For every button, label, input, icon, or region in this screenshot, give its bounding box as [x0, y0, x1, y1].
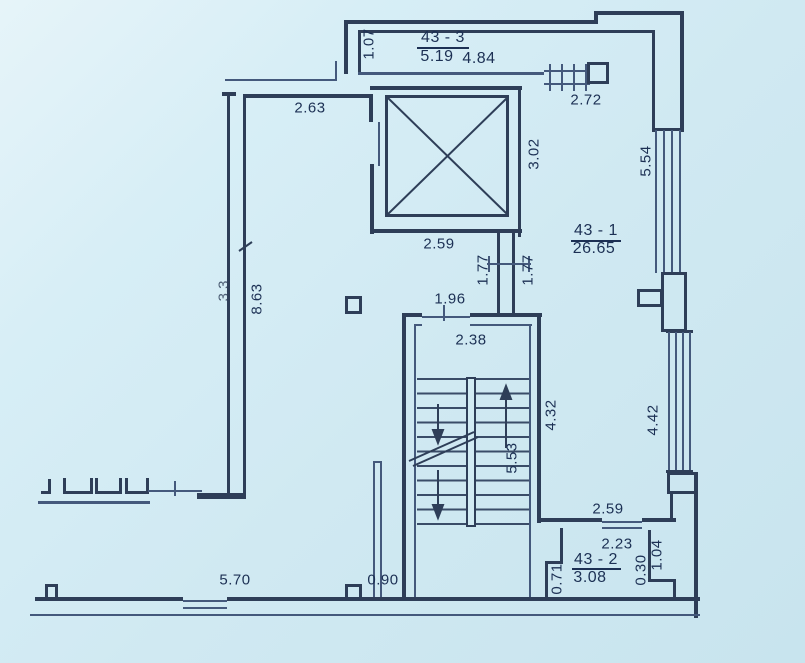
dim-label-1-07: 1.07 [361, 28, 378, 59]
room-label-43-2: 43 - 2 [574, 551, 618, 569]
dim-label-1-77-left: 1.77 [475, 254, 492, 285]
room-area-43-2: 3.08 [573, 569, 606, 587]
dim-label-2-63: 2.63 [294, 100, 325, 117]
dim-label-1-77-right: 1.77 [520, 254, 537, 285]
dim-label-4-42: 4.42 [645, 404, 662, 435]
room-area-43-1: 26.65 [573, 240, 616, 258]
dim-label-8-63: 8.63 [249, 283, 266, 314]
dim-label-0-90: 0.90 [367, 572, 398, 589]
plan-annotations-svg [0, 0, 805, 663]
stair-down-arrow [433, 404, 443, 443]
dimension-tick [239, 242, 252, 251]
dim-label-1-96: 1.96 [434, 291, 465, 308]
dim-label-3-02: 3.02 [526, 138, 543, 169]
elevator-x-icon [388, 98, 507, 214]
dim-label-5-70: 5.70 [219, 572, 250, 589]
stair-up-arrow [501, 386, 511, 448]
dim-label-2-72: 2.72 [570, 92, 601, 109]
dim-label-5-53: 5.53 [504, 442, 521, 473]
dim-label-2-23: 2.23 [601, 536, 632, 553]
dim-label-0-30: 0.30 [633, 554, 650, 585]
stair-break-line [409, 432, 478, 466]
room-label-43-3: 43 - 3 [421, 29, 465, 47]
dim-label-2-59-top: 2.59 [423, 236, 454, 253]
room-label-43-1: 43 - 1 [574, 222, 618, 240]
room-area-43-3: 5.19 [420, 48, 453, 66]
dim-label-4-32: 4.32 [543, 399, 560, 430]
stair-down-arrow [433, 470, 443, 518]
dim-label-2-38: 2.38 [455, 332, 486, 349]
room-area2-43-3: 4.84 [462, 50, 495, 68]
dim-label-0-71: 0.71 [549, 563, 566, 594]
dim-label-5-54: 5.54 [638, 145, 655, 176]
floor-plan-canvas: 3.3 [0, 0, 805, 663]
dim-label-1-04: 1.04 [649, 539, 666, 570]
dim-label-2-59-low: 2.59 [592, 501, 623, 518]
